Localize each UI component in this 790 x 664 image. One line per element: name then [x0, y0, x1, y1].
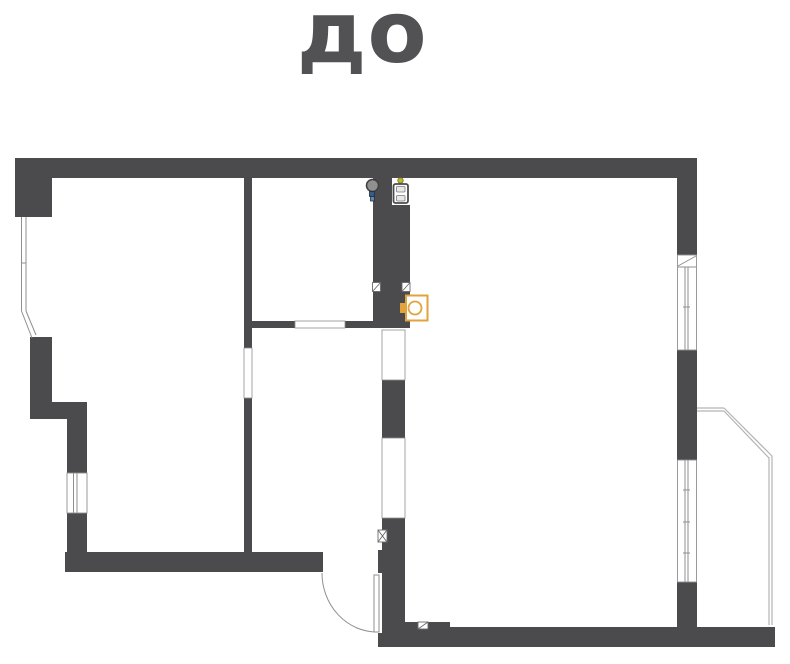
opening-bath-door — [382, 438, 405, 518]
plumbing-valve-icon — [371, 197, 375, 202]
right-wall-mid — [677, 350, 697, 460]
window-right-upper — [678, 255, 697, 350]
hall-wall-upper — [382, 380, 405, 438]
door-arc — [322, 573, 377, 632]
electrical-panel-module — [397, 196, 406, 202]
left-wall-upper — [67, 419, 87, 474]
left-step-arm — [30, 402, 87, 419]
plumbing-valve-icon — [370, 192, 375, 197]
balcony-outline — [724, 408, 772, 456]
bottom-wall — [445, 627, 775, 647]
mid-wall-right — [345, 321, 373, 328]
interior-wall-lower — [244, 398, 252, 552]
plumbing-riser-icon — [367, 180, 379, 192]
floor-plan-page: до — [0, 0, 790, 664]
right-wall-top — [677, 158, 697, 255]
window-right-lower — [678, 460, 697, 582]
right-wall-bottom — [677, 582, 697, 627]
bay-window-line — [26, 311, 36, 335]
door-jamb — [378, 550, 382, 573]
door-leaf — [374, 575, 379, 632]
bottom-left-wall — [65, 552, 323, 572]
interior-wall-upper — [244, 178, 252, 348]
left-wall-lower — [67, 513, 87, 558]
floor-plan-svg — [0, 0, 790, 664]
balcony-outline — [724, 411, 769, 458]
opening-hall-upper — [382, 330, 405, 380]
opening-mid-wall — [295, 321, 345, 328]
bay-window-line — [22, 311, 33, 338]
top-left-block — [15, 158, 52, 217]
bottom-stub — [378, 633, 382, 647]
indicator-dot-icon — [398, 178, 403, 183]
opening-interior-wall — [244, 348, 252, 398]
mid-wall-left — [252, 321, 295, 328]
top-wall — [15, 158, 697, 178]
electrical-panel-module — [397, 187, 406, 193]
